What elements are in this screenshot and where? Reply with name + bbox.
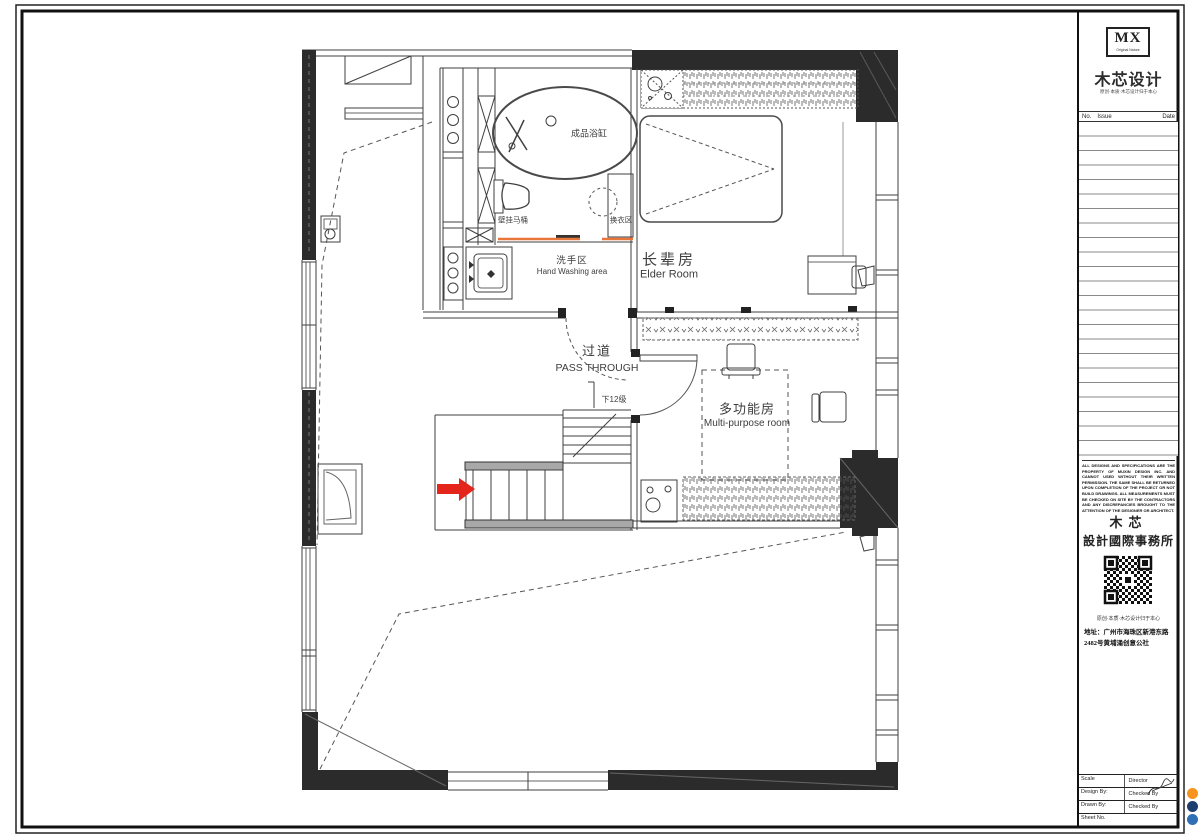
scale-label: Scale [1079, 775, 1125, 787]
address-line-2: 2482号黄埔涌创意公社 [1084, 639, 1175, 650]
floor-plan-linework [0, 0, 1200, 839]
checked-by-label-2: Checked By [1125, 801, 1159, 810]
mx-logo-text: MX [1108, 30, 1148, 47]
stairs-note-label: 下12级 [602, 396, 627, 404]
pdffactory-dot-blue [1187, 814, 1198, 825]
firm-name-top: 木芯 [1079, 512, 1178, 531]
design-by-row: Design By: Checked By [1079, 788, 1178, 801]
signature-table: Scale Director Design By: Checked By Dra… [1079, 774, 1178, 827]
disclaimer-text: ALL DESIGNS AND SPECIFICATIONS ARE THE P… [1082, 460, 1175, 513]
pdffactory-dot-orange [1187, 788, 1198, 799]
bathtub-label: 成品浴缸 [571, 130, 607, 139]
rev-col-no: No. [1082, 114, 1091, 120]
multi-room-label-zh: 多功能房 [719, 403, 775, 416]
mx-logo: MX Original Nature [1106, 27, 1150, 57]
multi-room-label-en: Multi-purpose room [704, 419, 790, 429]
brand-title: 木芯设计 [1079, 66, 1178, 90]
firm-motto: 原创·本质·木芯设计归于本心 [1079, 615, 1178, 622]
director-label: Director [1125, 775, 1148, 784]
wash-area-label-zh: 洗手区 [556, 256, 588, 266]
wash-area-label-en: Hand Washing area [537, 268, 607, 276]
revision-table-header: No. Issue Date [1079, 111, 1178, 122]
pass-through-label-en: PASS THROUGH [555, 363, 638, 374]
scale-row: Scale Director [1079, 775, 1178, 788]
changing-area-label: 换衣区 [610, 216, 633, 224]
plan-geometry [302, 50, 898, 790]
exterior-walls [302, 50, 898, 790]
pass-through-label-zh: 过道 [582, 345, 612, 358]
sheet-no-row: Sheet No. [1079, 814, 1178, 826]
stairs [435, 382, 633, 530]
checked-by-label: Checked By [1125, 788, 1159, 797]
qr-code [1101, 553, 1155, 607]
red-arrow [437, 478, 475, 501]
drawing-sheet: 成品浴缸 壁挂马桶 换衣区 洗手区 Hand Washing area 长辈房 … [0, 0, 1200, 839]
mx-logo-subtitle: Original Nature [1108, 48, 1148, 52]
drawn-by-label: Drawn By: [1079, 801, 1125, 813]
toilet-label: 壁挂马桶 [498, 216, 528, 224]
title-block: MX Original Nature 木芯设计 原创·本质·木芯设计归于本心 N… [1079, 12, 1178, 827]
firm-name-bottom: 設計國際事務所 [1079, 532, 1178, 549]
brand-tagline: 原创·本质·木芯设计归于本心 [1079, 89, 1178, 95]
design-by-label: Design By: [1079, 788, 1125, 800]
revision-table-rows [1079, 122, 1178, 456]
rev-col-date: Date [1162, 114, 1175, 120]
pdffactory-dot-navy [1187, 801, 1198, 812]
firm-address: 地址：广州市海珠区新港东路 2482号黄埔涌创意公社 [1084, 628, 1175, 649]
address-line-1: 地址：广州市海珠区新港东路 [1084, 628, 1175, 639]
rev-col-issue: Issue [1097, 114, 1111, 120]
elder-room-label-zh: 长辈房 [642, 253, 696, 268]
elder-room-label-en: Elder Room [640, 270, 698, 281]
sheet-no-label: Sheet No. [1079, 814, 1178, 826]
drawn-by-row: Drawn By: Checked By [1079, 801, 1178, 814]
